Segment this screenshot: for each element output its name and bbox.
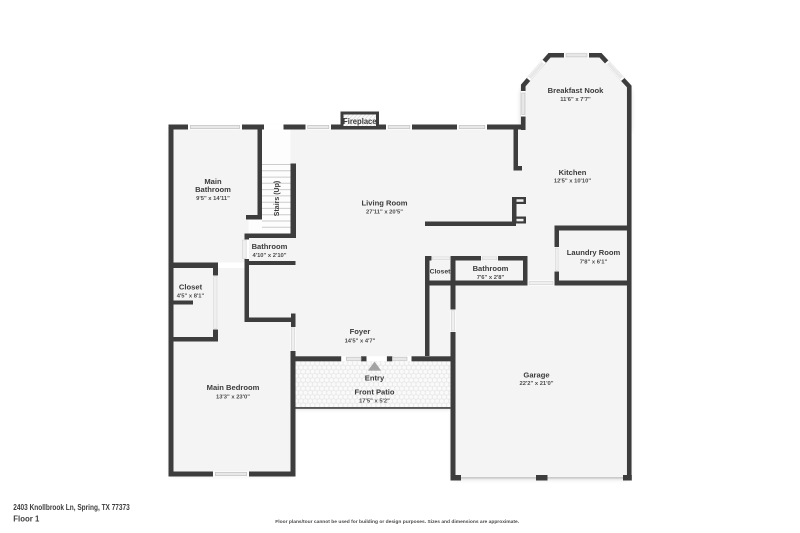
svg-text:Living Room: Living Room bbox=[362, 198, 408, 207]
svg-text:Garage: Garage bbox=[523, 370, 549, 379]
svg-text:4'10" x 2'10": 4'10" x 2'10" bbox=[252, 253, 286, 259]
svg-text:22'2" x 21'0": 22'2" x 21'0" bbox=[519, 381, 553, 387]
svg-text:Front Patio: Front Patio bbox=[354, 387, 394, 396]
svg-text:Laundry Room: Laundry Room bbox=[567, 248, 621, 257]
svg-text:12'5" x 10'10": 12'5" x 10'10" bbox=[554, 179, 592, 185]
svg-text:11'6" x 7'7": 11'6" x 7'7" bbox=[560, 97, 591, 103]
svg-text:Bathroom: Bathroom bbox=[195, 185, 231, 194]
svg-text:7'8" x 6'1": 7'8" x 6'1" bbox=[580, 259, 608, 265]
svg-text:Fireplace: Fireplace bbox=[343, 117, 377, 126]
svg-text:Closet: Closet bbox=[430, 268, 452, 275]
svg-text:4'5" x 8'1": 4'5" x 8'1" bbox=[177, 294, 205, 300]
svg-text:7'6" x 2'8": 7'6" x 2'8" bbox=[477, 275, 505, 281]
svg-text:14'5" x 4'7": 14'5" x 4'7" bbox=[345, 339, 376, 345]
svg-text:13'3" x 23'0": 13'3" x 23'0" bbox=[216, 395, 250, 401]
svg-text:Closet: Closet bbox=[179, 283, 203, 292]
svg-text:Foyer: Foyer bbox=[350, 327, 371, 336]
svg-text:Floor 1: Floor 1 bbox=[13, 515, 40, 524]
svg-text:Stairs (Up): Stairs (Up) bbox=[274, 181, 281, 216]
svg-text:2403 Knollbrook Ln, Spring, TX: 2403 Knollbrook Ln, Spring, TX 77373 bbox=[13, 503, 130, 512]
svg-text:Bathroom: Bathroom bbox=[473, 264, 509, 273]
svg-text:Entry: Entry bbox=[365, 374, 385, 383]
svg-text:27'11" x 20'5": 27'11" x 20'5" bbox=[366, 210, 403, 216]
svg-text:Main Bedroom: Main Bedroom bbox=[207, 383, 260, 392]
svg-text:9'5" x 14'11": 9'5" x 14'11" bbox=[196, 196, 230, 202]
svg-text:Bathroom: Bathroom bbox=[252, 242, 288, 251]
svg-text:Floor plans/tour cannot be use: Floor plans/tour cannot be used for buil… bbox=[275, 519, 519, 525]
svg-text:17'5" x 5'2": 17'5" x 5'2" bbox=[359, 399, 390, 405]
svg-text:Kitchen: Kitchen bbox=[559, 168, 587, 177]
svg-text:Breakfast Nook: Breakfast Nook bbox=[548, 86, 604, 95]
